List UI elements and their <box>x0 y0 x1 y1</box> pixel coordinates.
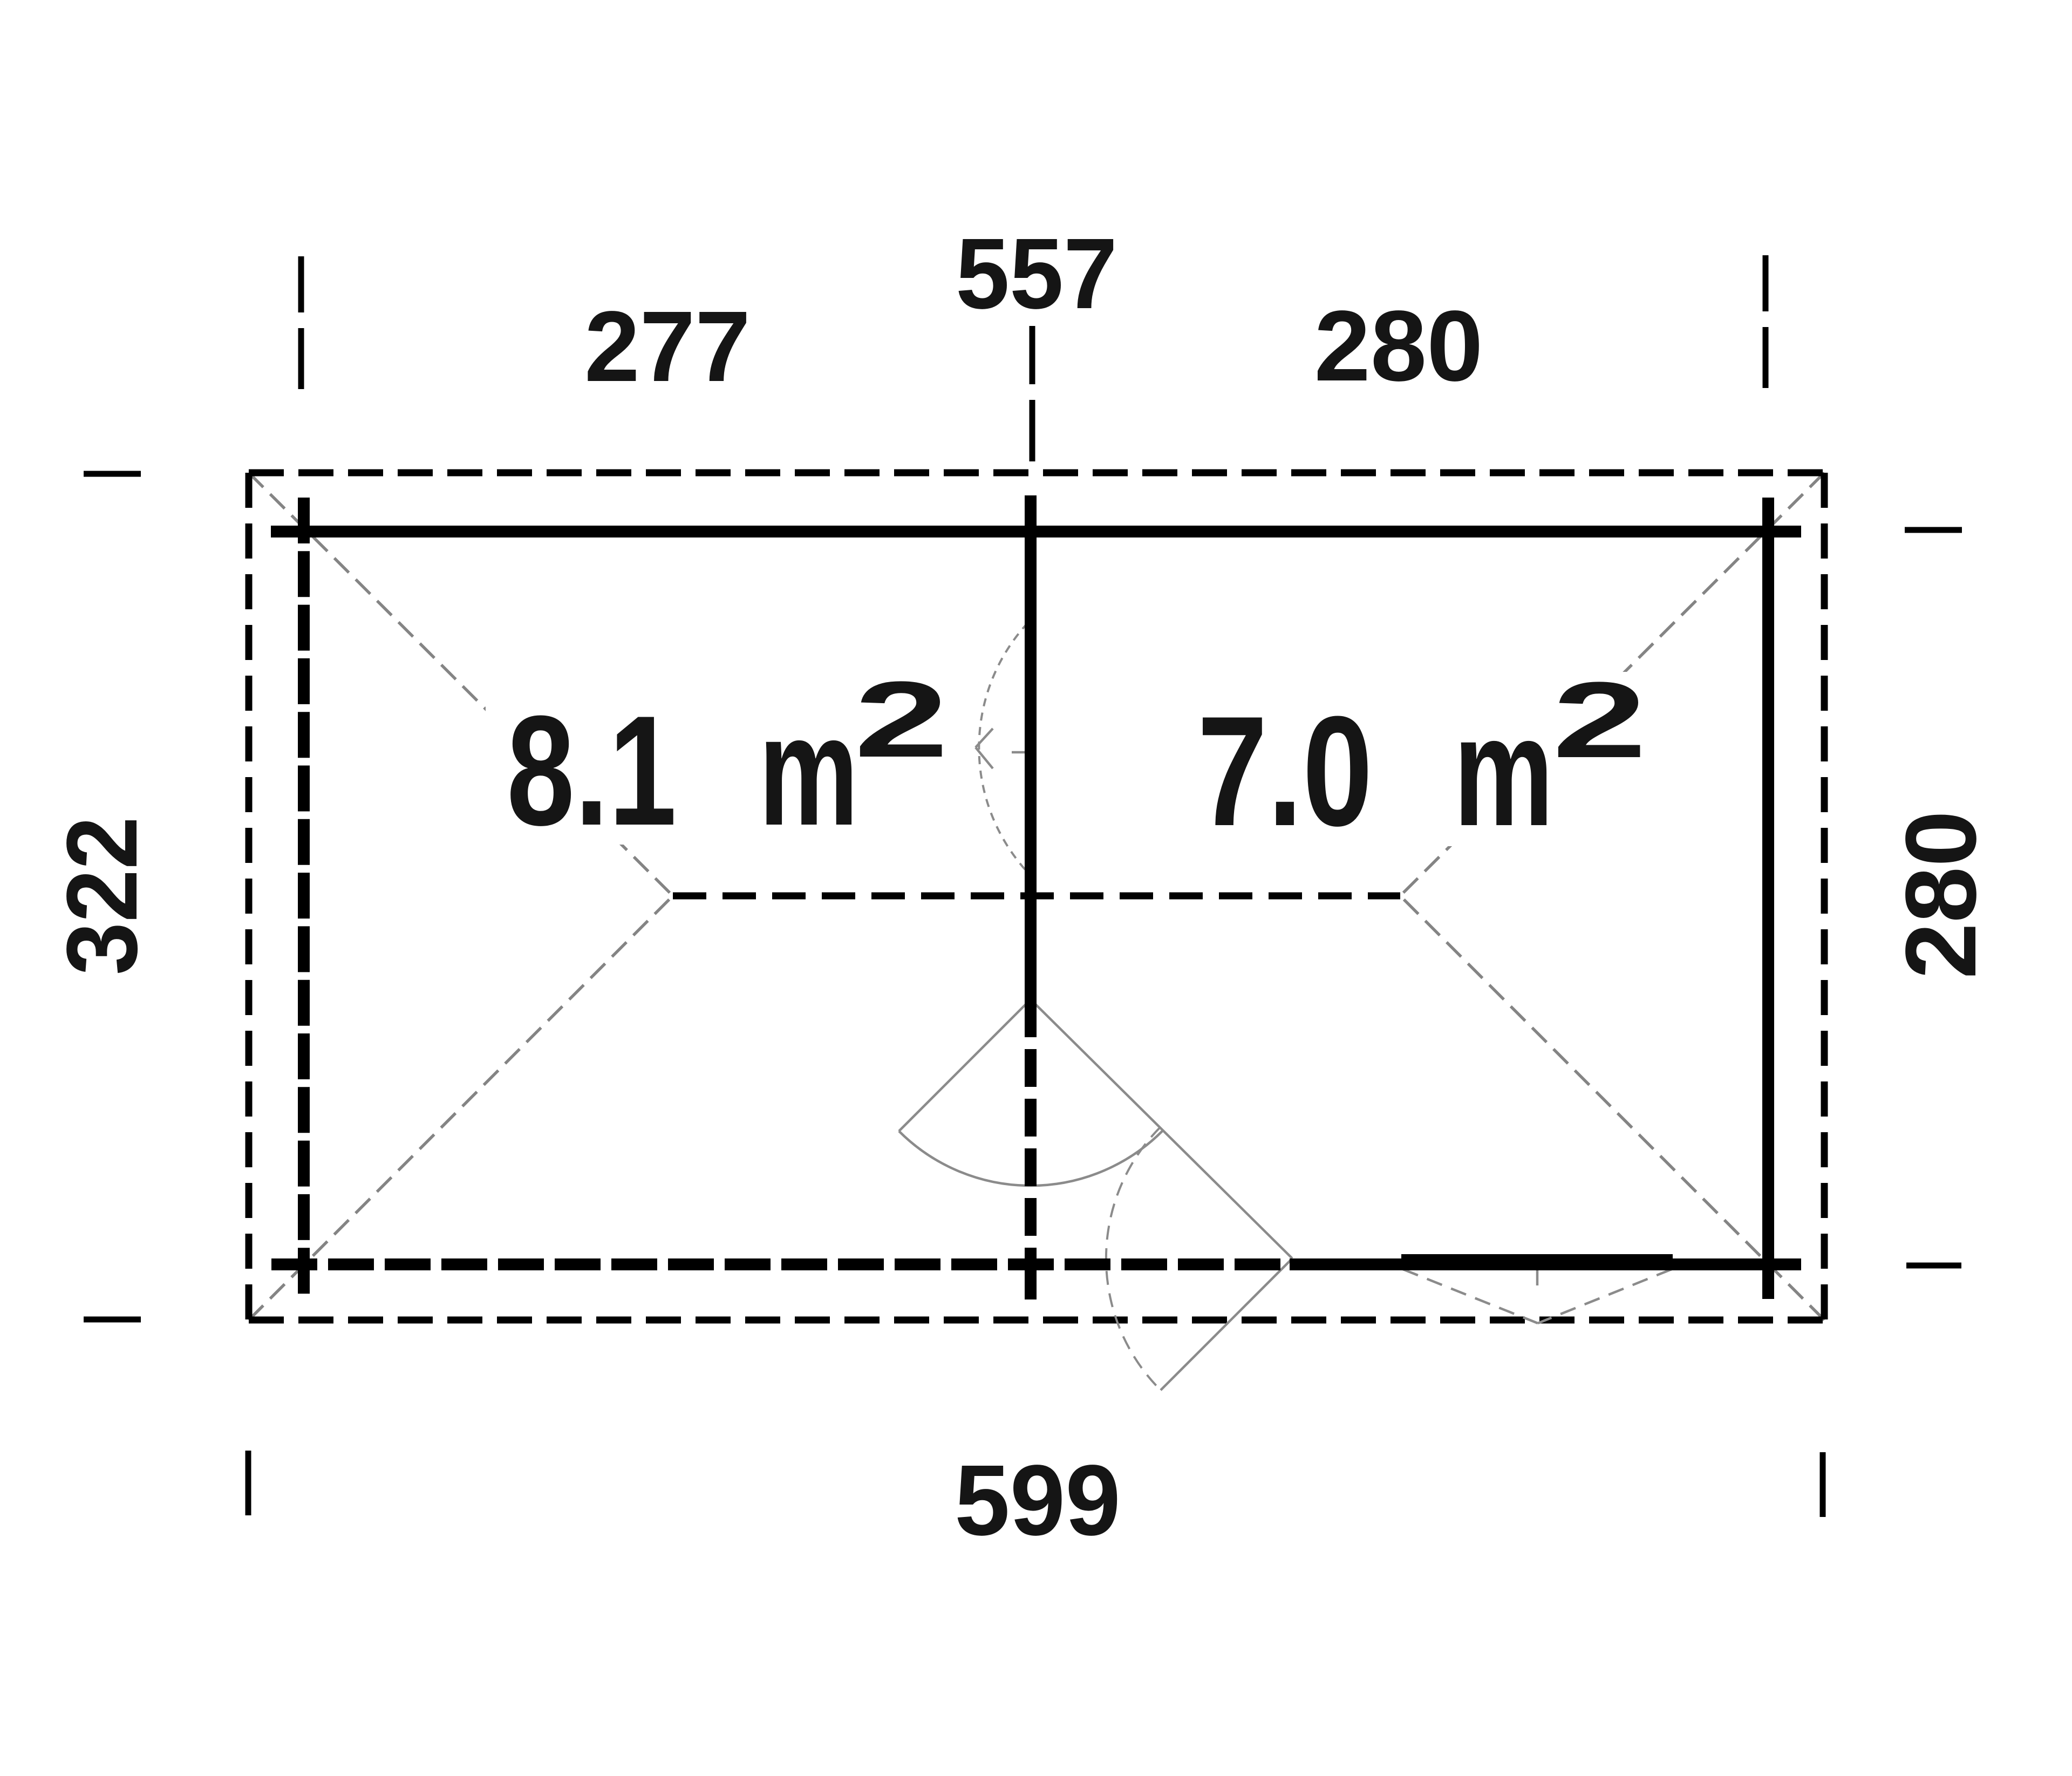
svg-text:599: 599 <box>955 1445 1121 1556</box>
svg-text:7.0: 7.0 <box>1197 684 1373 859</box>
svg-text:322: 322 <box>46 816 158 975</box>
svg-text:557: 557 <box>956 218 1117 330</box>
svg-text:277: 277 <box>584 291 751 403</box>
svg-text:8.1: 8.1 <box>507 683 677 858</box>
svg-text:280: 280 <box>1314 290 1483 402</box>
svg-text:2: 2 <box>1552 660 1647 780</box>
svg-text:280: 280 <box>1885 811 1997 979</box>
svg-text:2: 2 <box>854 659 949 780</box>
svg-text:m: m <box>1454 684 1553 859</box>
svg-text:m: m <box>759 683 858 858</box>
